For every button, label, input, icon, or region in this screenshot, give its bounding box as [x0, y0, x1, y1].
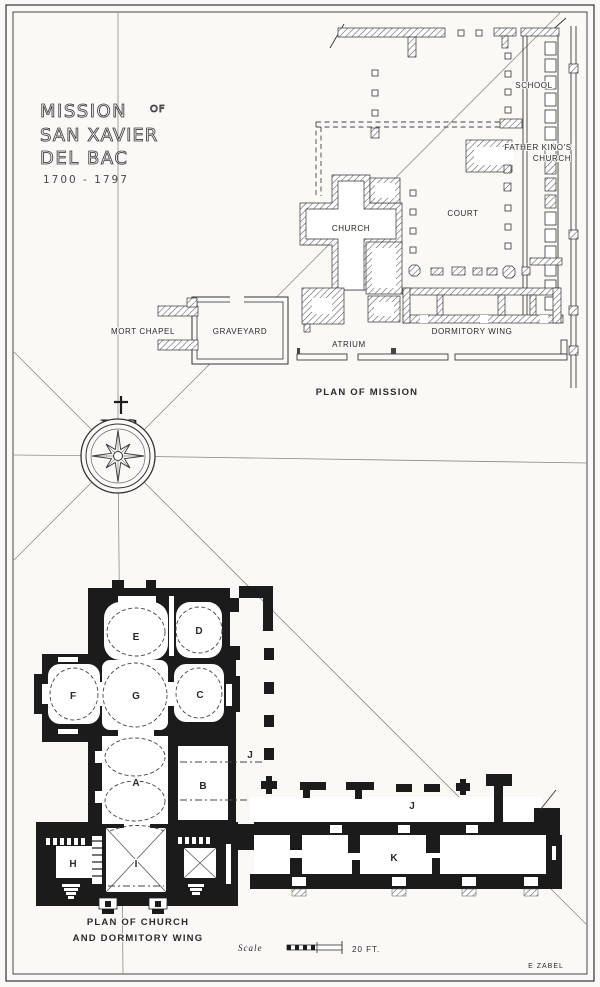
signature: E ZABEL — [528, 963, 564, 970]
graveyard: GRAVEYARD — [192, 294, 288, 364]
mission-church-label: CHURCH — [332, 224, 370, 233]
graveyard-label: GRAVEYARD — [213, 327, 267, 336]
atrium-label: ATRIUM — [332, 340, 366, 349]
room-c: C — [196, 690, 203, 701]
court-label: COURT — [447, 209, 478, 218]
father-kinos-label-line1: FATHER KINO'S — [504, 143, 571, 152]
church-plan-caption-line2: AND DORMITORY WING — [73, 933, 204, 944]
dormitory-wing-label: DORMITORY WING — [432, 327, 513, 336]
room-f: F — [70, 691, 76, 702]
father-kinos-label-line2: CHURCH — [533, 154, 571, 163]
room-b: B — [199, 781, 206, 792]
drawing-sheet: MISSION OF SAN XAVIER DEL BAC 1700 - 179… — [0, 0, 600, 987]
title-line3: DEL BAC — [40, 148, 128, 169]
title-of: OF — [150, 104, 166, 115]
room-d: D — [195, 626, 202, 637]
church-plan-caption-line1: PLAN OF CHURCH — [87, 917, 189, 928]
title-dates: 1700 - 1797 — [43, 174, 129, 186]
mission-drawing: MISSION OF SAN XAVIER DEL BAC 1700 - 179… — [0, 0, 600, 987]
room-j-south: J — [409, 801, 415, 812]
school-label: SCHOOL — [515, 81, 552, 90]
room-h: H — [69, 859, 76, 870]
scale-label: Scale — [238, 943, 263, 953]
room-a: A — [132, 778, 139, 789]
mission-plan-caption: PLAN OF MISSION — [316, 387, 418, 398]
room-i: I — [135, 859, 138, 870]
room-e: E — [133, 632, 140, 643]
compass-rose-icon — [81, 419, 155, 493]
mort-chapel-label: MORT CHAPEL — [111, 327, 175, 336]
title-line2: SAN XAVIER — [40, 125, 158, 146]
scale-value: 20 FT. — [352, 945, 380, 954]
room-j-west: J — [247, 750, 253, 761]
title-line1: MISSION — [40, 101, 127, 122]
room-k: K — [390, 853, 398, 864]
dormitory-rooms — [250, 822, 562, 896]
room-g: G — [132, 691, 140, 702]
